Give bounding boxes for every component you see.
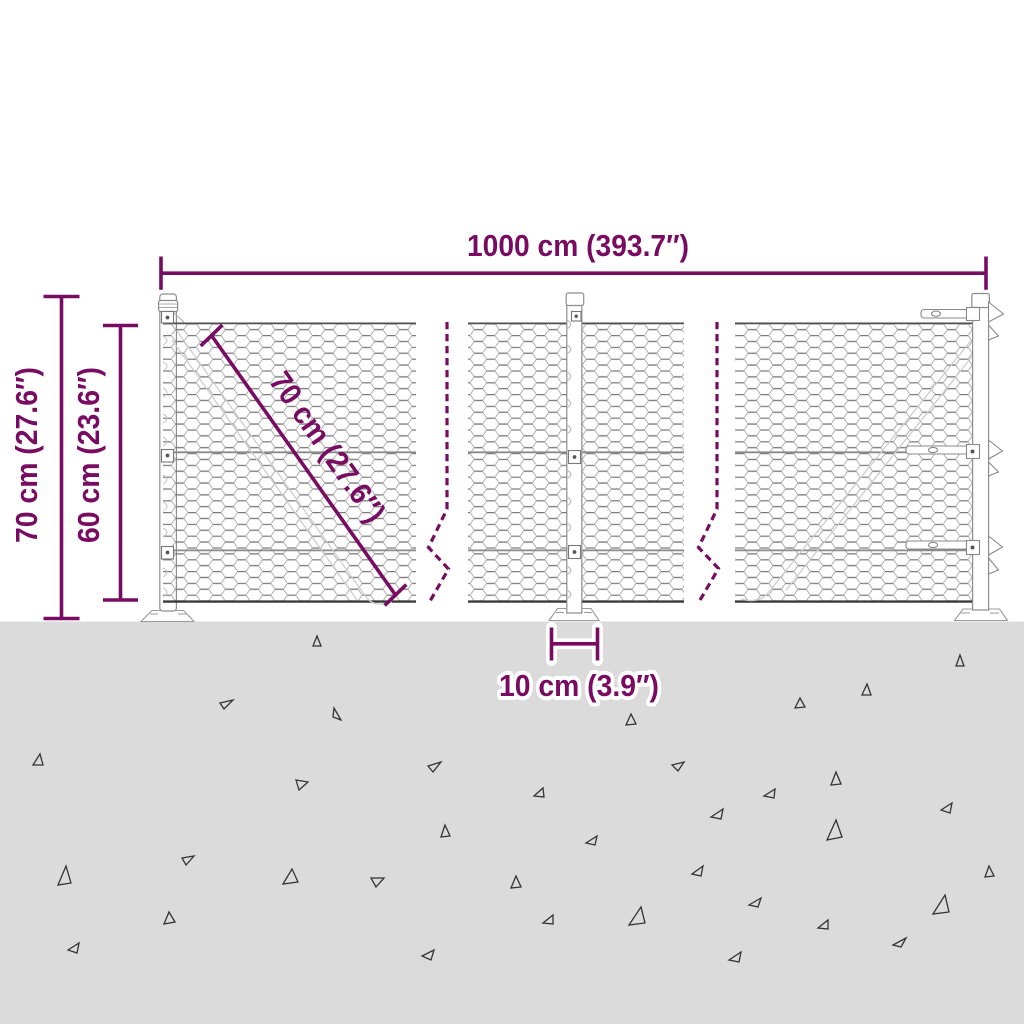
svg-text:1000 cm (393.7″): 1000 cm (393.7″) [467,228,689,263]
svg-text:60 cm (23.6″): 60 cm (23.6″) [71,367,106,543]
svg-text:70 cm (27.6″): 70 cm (27.6″) [9,367,44,543]
svg-text:10 cm (3.9″): 10 cm (3.9″) [499,668,659,703]
